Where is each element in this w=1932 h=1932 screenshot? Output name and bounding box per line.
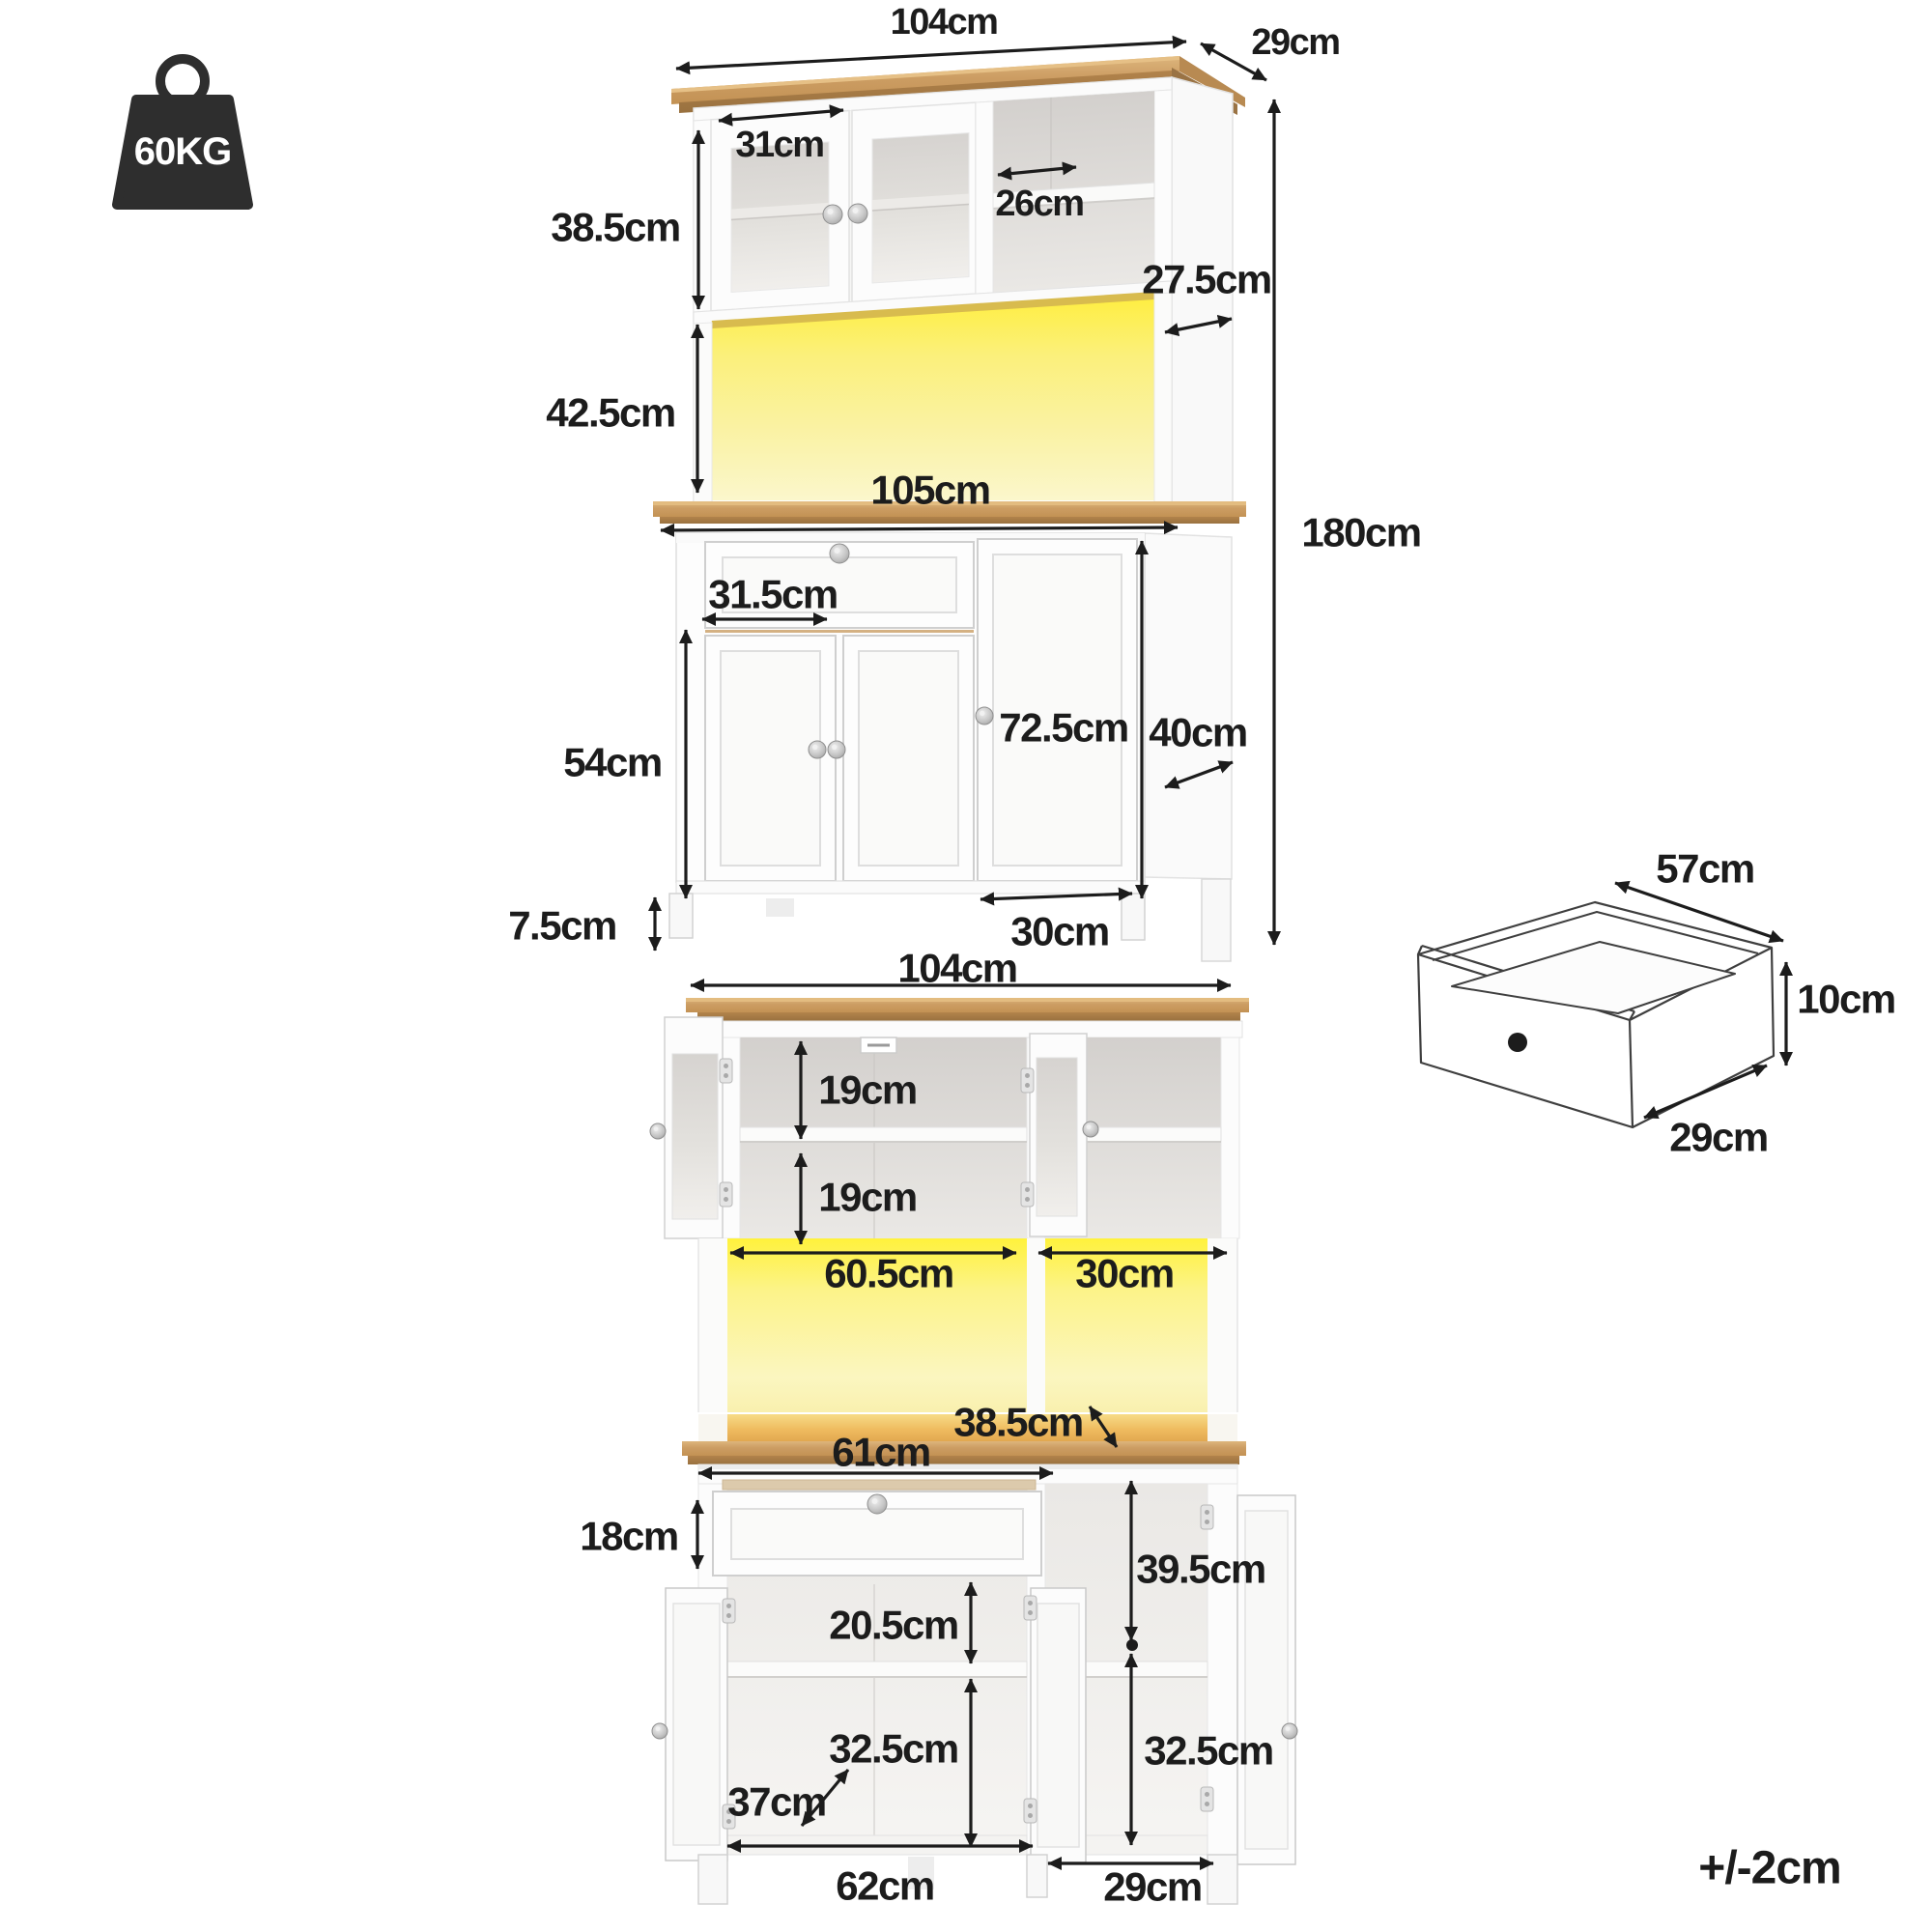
svg-text:104cm: 104cm (891, 2, 998, 43)
svg-text:29cm: 29cm (1251, 22, 1339, 63)
svg-text:39.5cm: 39.5cm (1136, 1547, 1264, 1592)
svg-text:31.5cm: 31.5cm (708, 572, 837, 617)
svg-text:19cm: 19cm (818, 1067, 916, 1113)
svg-text:18cm: 18cm (580, 1514, 677, 1559)
svg-text:105cm: 105cm (870, 468, 989, 513)
svg-text:+/-2cm: +/-2cm (1698, 1843, 1840, 1894)
svg-text:19cm: 19cm (818, 1175, 916, 1220)
svg-text:30cm: 30cm (1010, 909, 1108, 954)
svg-text:38.5cm: 38.5cm (953, 1400, 1082, 1445)
svg-text:57cm: 57cm (1656, 846, 1753, 892)
svg-text:20.5cm: 20.5cm (829, 1603, 957, 1648)
svg-text:37cm: 37cm (727, 1779, 825, 1825)
svg-text:62cm: 62cm (836, 1863, 933, 1909)
svg-text:72.5cm: 72.5cm (999, 705, 1127, 751)
svg-text:29cm: 29cm (1103, 1864, 1201, 1910)
svg-text:54cm: 54cm (563, 740, 661, 785)
svg-text:29cm: 29cm (1669, 1115, 1767, 1160)
svg-text:60.5cm: 60.5cm (824, 1251, 952, 1296)
svg-text:27.5cm: 27.5cm (1142, 257, 1270, 302)
svg-text:42.5cm: 42.5cm (546, 390, 674, 436)
svg-text:61cm: 61cm (832, 1430, 929, 1475)
svg-text:7.5cm: 7.5cm (508, 903, 616, 949)
svg-text:180cm: 180cm (1301, 510, 1420, 555)
svg-text:10cm: 10cm (1797, 977, 1894, 1022)
svg-text:32.5cm: 32.5cm (829, 1726, 957, 1772)
svg-text:40cm: 40cm (1149, 710, 1246, 755)
svg-text:30cm: 30cm (1075, 1251, 1173, 1296)
svg-text:32.5cm: 32.5cm (1144, 1728, 1272, 1774)
svg-text:38.5cm: 38.5cm (551, 205, 679, 250)
svg-text:60KG: 60KG (134, 130, 232, 173)
svg-text:31cm: 31cm (735, 125, 823, 165)
svg-text:26cm: 26cm (995, 184, 1083, 224)
